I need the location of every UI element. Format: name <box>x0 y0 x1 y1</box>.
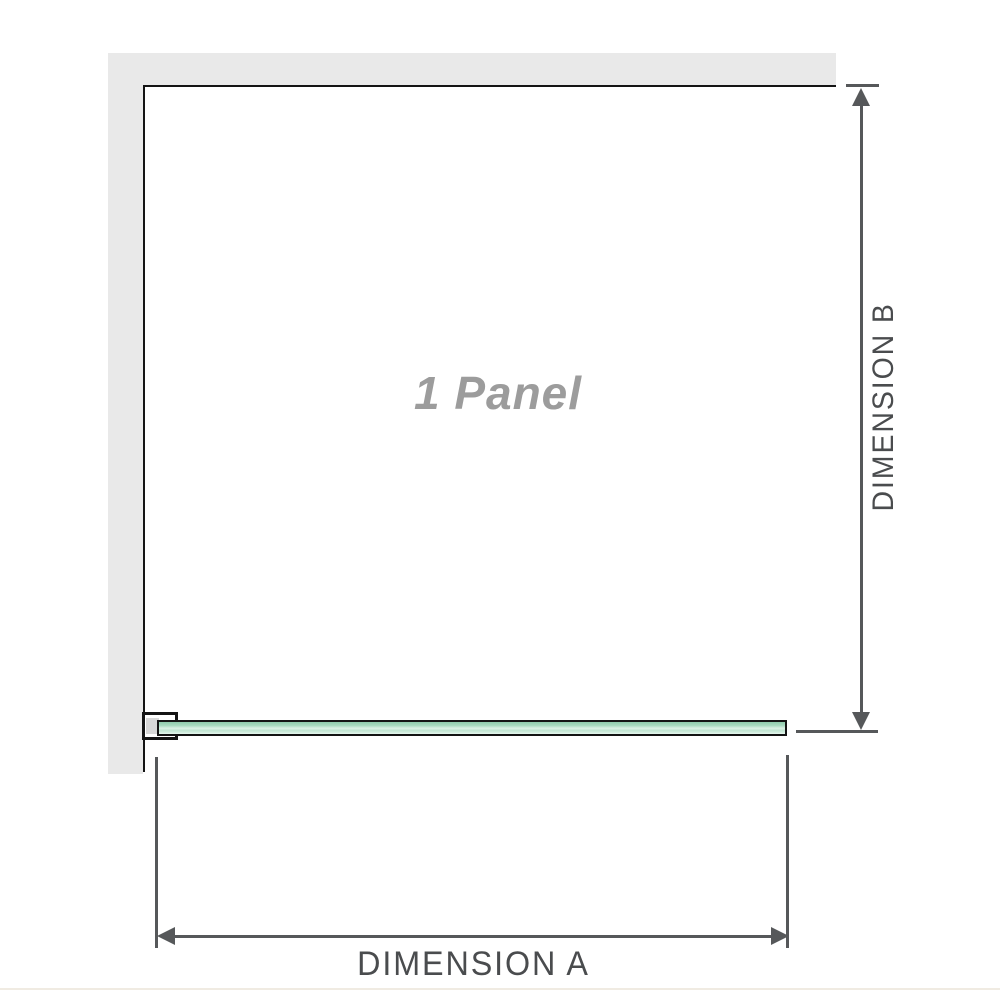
left-arrowhead-icon <box>157 927 175 945</box>
dimension-a-label-wrap: DIMENSION A <box>273 945 673 984</box>
diagram-canvas: 1 Panel DIMENSION B DIMENSION A <box>0 0 1000 1000</box>
wall-left <box>108 53 143 774</box>
dimension-b-tick-top <box>846 84 879 87</box>
right-arrowhead-icon <box>771 927 789 945</box>
wall-top <box>108 53 836 85</box>
dimension-a-extension-right <box>786 755 789 948</box>
glass-panel <box>157 720 787 736</box>
dimension-a-label: DIMENSION A <box>357 945 590 984</box>
page-edge-line <box>0 988 1000 990</box>
room-outline <box>143 85 836 772</box>
dimension-b-tick-bottom <box>796 730 878 733</box>
panel-count-label: 1 Panel <box>143 366 853 420</box>
dimension-a-line <box>162 935 784 938</box>
dimension-b-label-wrap: DIMENSION B <box>867 317 901 517</box>
dimension-b-label: DIMENSION B <box>867 302 901 511</box>
up-arrowhead-icon <box>852 88 870 106</box>
dimension-b-line <box>860 96 863 722</box>
dimension-a-extension-left <box>155 757 158 948</box>
down-arrowhead-icon <box>852 712 870 730</box>
